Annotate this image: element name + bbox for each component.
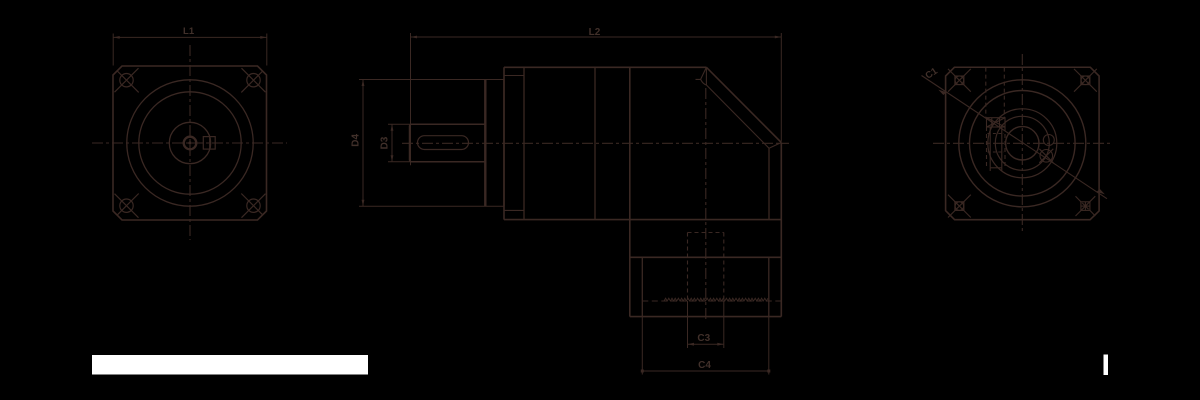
svg-text:L1: L1 (183, 26, 195, 37)
svg-text:D3: D3 (379, 136, 390, 149)
svg-text:C4: C4 (698, 360, 711, 371)
svg-text:C3: C3 (697, 333, 710, 344)
svg-text:L2: L2 (589, 27, 601, 38)
svg-text:D4: D4 (351, 133, 362, 146)
